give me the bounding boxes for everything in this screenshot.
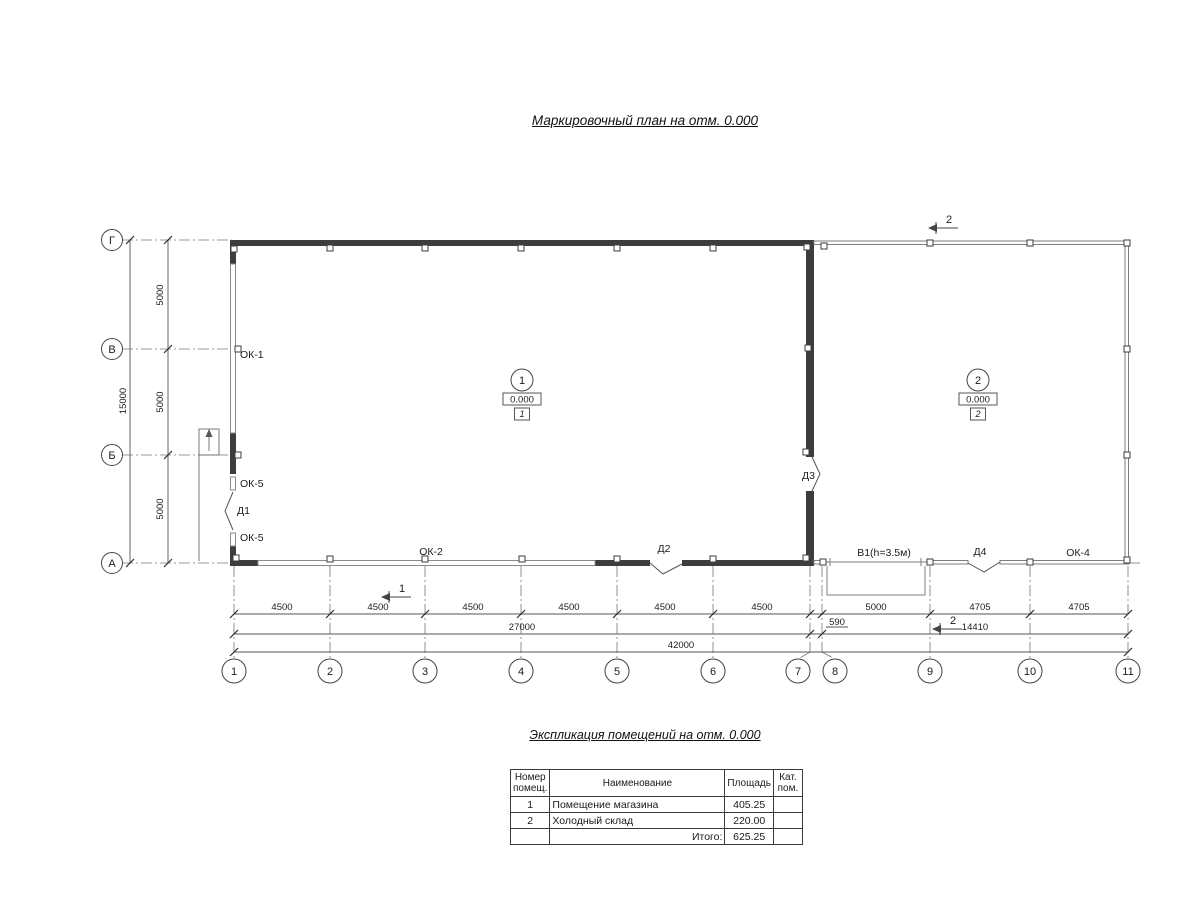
axis-circles-bottom: 1 2 3 4 5 6 7 8 9 10 11 [222,659,1140,683]
row2-category [773,813,802,829]
room1-marker: 1 0.000 1 [503,369,541,420]
axis-b: Б [108,450,115,462]
dim-left-5000-a: 5000 [155,284,166,305]
label-ok1: ОК-1 [240,349,264,361]
axis-2: 2 [327,666,333,678]
room2-elevation: 0.000 [966,395,990,406]
label-ok5-bottom: ОК-5 [240,532,264,544]
dim-5-6: 4500 [654,602,675,613]
room1-windows [231,264,596,566]
axis-6: 6 [710,666,716,678]
total-label: Итого: [550,829,725,845]
label-d4: Д4 [974,546,987,558]
header-area: Площадь [725,770,774,797]
dimension-labels: 4500 4500 4500 4500 4500 4500 590 5000 4… [118,284,1090,651]
dim-left-5000-c: 5000 [155,498,166,519]
door-d2-leaf [650,563,682,574]
dim-27000: 27000 [509,622,535,633]
entrance-platform [199,429,219,561]
label-ok4: ОК-4 [1066,547,1090,559]
section-mark-2-top: 2 [928,214,958,234]
opening-labels: ОК-1 ОК-5 Д1 ОК-5 ОК-2 Д2 Д3 В1(h=3.5м) … [237,349,1090,559]
label-ok2: ОК-2 [419,546,443,558]
dim-10-11: 4705 [1068,602,1089,613]
room1-elevation: 0.000 [510,395,534,406]
dim-2-3: 4500 [367,602,388,613]
section-1-label: 1 [399,583,405,595]
axis-5: 5 [614,666,620,678]
section-2-bottom-label: 2 [950,615,956,627]
table-header-row: Номер помещ. Наименование Площадь Кат. п… [511,770,803,797]
table-row: 1 Помещение магазина 405.25 [511,797,803,813]
drawing-sheet: Маркировочный план на отм. 0.000 [0,0,1200,900]
row1-number: 1 [511,797,550,813]
ramp-arrow-icon [206,429,213,437]
dim-4-5: 4500 [558,602,579,613]
dim-1-2: 4500 [271,602,292,613]
dim-14410: 14410 [962,622,988,633]
door-d1-leaf [225,492,233,530]
axis-11: 11 [1122,666,1133,678]
axis-9: 9 [927,666,933,678]
floor-plan-svg: 4500 4500 4500 4500 4500 4500 590 5000 4… [0,0,1200,900]
window-ok5-bottom [231,533,236,546]
dim-left-5000-b: 5000 [155,391,166,412]
label-v1: В1(h=3.5м) [857,547,911,559]
room2-tag: 2 [974,409,980,419]
dim-7-8: 590 [829,617,845,628]
axis-3: 3 [422,666,428,678]
dimension-lines [130,240,1128,652]
room1-number: 1 [519,375,525,387]
dim-3-4: 4500 [462,602,483,613]
row1-category [773,797,802,813]
axis-g: Г [109,235,115,247]
row2-number: 2 [511,813,550,829]
section-mark-2-bottom: 2 [932,615,962,635]
header-name: Наименование [550,770,725,797]
explication-table: Номер помещ. Наименование Площадь Кат. п… [510,769,803,845]
header-category: Кат. пом. [773,770,802,797]
loading-dock [827,566,925,595]
room2-marker: 2 0.000 2 [959,369,997,420]
dim-left-15000: 15000 [118,388,129,414]
table-row: 2 Холодный склад 220.00 [511,813,803,829]
row2-name: Холодный склад [550,813,725,829]
row2-area: 220.00 [725,813,774,829]
axis-grid-lines [122,240,1143,659]
room2-number: 2 [975,375,981,387]
label-d3: Д3 [802,470,815,482]
dim-8-9: 5000 [865,602,886,613]
total-category-cell [773,829,802,845]
axis-v: В [108,344,115,356]
dim-42000: 42000 [668,640,694,651]
axis-7: 7 [795,666,801,678]
window-ok5-top [231,477,236,490]
dim-9-10: 4705 [969,602,990,613]
total-value: 625.25 [725,829,774,845]
section-2-top-label: 2 [946,214,952,226]
header-room-number: Номер помещ. [511,770,550,797]
table-total-row: Итого: 625.25 [511,829,803,845]
dim-6-7: 4500 [751,602,772,613]
gate-v1-opening [823,558,928,566]
axis-a: А [108,558,116,570]
row1-name: Помещение магазина [550,797,725,813]
axis-1: 1 [231,666,237,678]
total-empty-cell [511,829,550,845]
label-d2: Д2 [658,543,671,555]
section-mark-1-bottom: 1 [381,583,411,603]
axis-8: 8 [832,666,838,678]
axis-4: 4 [518,666,524,678]
dimension-ticks [126,236,1132,656]
explication-title: Экспликация помещений на отм. 0.000 [445,728,845,742]
row1-area: 405.25 [725,797,774,813]
label-d1: Д1 [237,505,250,517]
axis-10: 10 [1024,666,1036,678]
label-ok5-top: ОК-5 [240,478,264,490]
room1-tag: 1 [519,409,524,419]
door-d4-leaf [968,562,1000,572]
